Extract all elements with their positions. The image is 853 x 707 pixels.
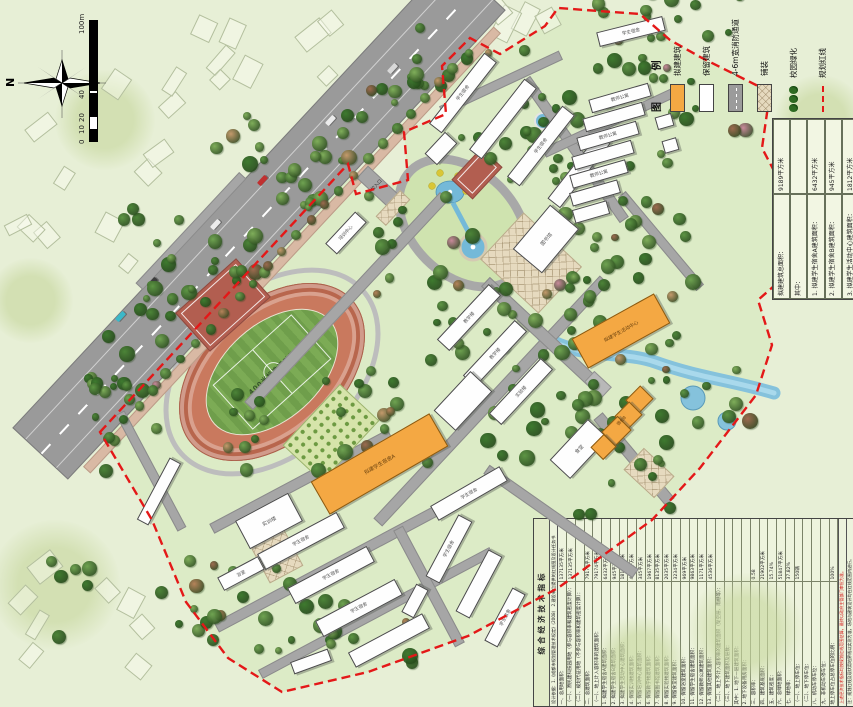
indicator-value xyxy=(812,519,820,581)
vegetation-blob xyxy=(688,573,803,688)
fountain-jet xyxy=(471,245,476,250)
tree xyxy=(392,123,402,133)
tree xyxy=(549,164,558,173)
tree xyxy=(497,450,508,461)
tree xyxy=(553,154,563,164)
tree xyxy=(573,509,585,521)
tree xyxy=(320,200,329,209)
indicator-row: （一）、原民建科技园用地（参与容积率和建筑密度计算）：137135平方米 xyxy=(567,519,576,706)
proposed-area-table: 拟建建筑总面积： 9189平方米 其中： 1. 拟建学生宿舍A建筑面积： 643… xyxy=(772,118,853,300)
tree xyxy=(124,394,135,405)
indicator-row: （二）、地下停车位： xyxy=(803,519,812,706)
tree xyxy=(310,151,321,162)
area-row-value: 945平方米 xyxy=(825,119,842,194)
tree xyxy=(648,377,655,384)
scale-tick: 20 xyxy=(78,113,86,122)
tree xyxy=(322,377,330,385)
area-row-label: 拟建建筑总面积： xyxy=(773,194,790,299)
indicator-value: 4536平方米 xyxy=(707,519,715,581)
indicator-value xyxy=(725,519,733,581)
tree xyxy=(239,441,251,453)
scale-tick: 0 xyxy=(78,140,86,144)
building-label: 实验楼 xyxy=(514,384,528,398)
proposed-building-swatch xyxy=(670,84,685,112)
tree xyxy=(615,354,626,365)
indicator-label: 八、机动车停车位： xyxy=(812,581,820,706)
tree xyxy=(598,279,610,291)
indicator-label: （一）、原民建科技园用地（参与容积率和建筑密度计算）： xyxy=(567,581,575,706)
tree xyxy=(564,308,577,321)
area-row-value xyxy=(790,119,807,194)
tree xyxy=(200,297,211,308)
tree xyxy=(288,636,295,643)
indicator-value: 100% xyxy=(830,519,838,581)
indicator-value: 15.74% xyxy=(768,519,776,581)
tree xyxy=(104,432,115,443)
indicator-row: 10. 保留浴室建筑面积：969平方米 xyxy=(681,519,690,706)
tree xyxy=(633,272,644,283)
indicator-value: 150辆 xyxy=(795,519,803,581)
legend-title: 图 例 xyxy=(648,2,663,112)
tree xyxy=(728,124,741,137)
building-label: 教师公寓 xyxy=(610,93,629,104)
tree xyxy=(189,579,204,594)
tree xyxy=(680,231,691,242)
tree xyxy=(307,215,316,224)
tree xyxy=(512,365,520,373)
tree xyxy=(437,301,447,311)
tree xyxy=(742,413,758,429)
retained-building-swatch xyxy=(699,84,714,112)
tree xyxy=(378,138,388,148)
indicator-value: 969平方米 xyxy=(681,519,689,581)
building-label: 教师公寓 xyxy=(598,131,617,142)
indicator-value xyxy=(803,519,811,581)
legend-item-firelane: 4-6m宽消防通道 xyxy=(721,2,750,112)
tree xyxy=(642,235,656,249)
tree xyxy=(336,407,346,417)
greening-swatch xyxy=(787,86,800,112)
tree xyxy=(732,366,740,374)
building-label: 学生宿舍 xyxy=(291,534,310,548)
tree xyxy=(143,295,150,302)
tree xyxy=(375,239,391,255)
tree xyxy=(208,234,222,248)
building-label: 学生宿舍 xyxy=(621,26,640,36)
indicator-row: 一、总用地面积：137135平方米 xyxy=(558,519,567,706)
tree xyxy=(235,292,244,301)
design-basis: 设计依据：1.《成都市规划管理技术规定》(2008) 2.建设单位提供的红线图及… xyxy=(550,519,558,706)
indicator-value xyxy=(742,519,750,581)
indicator-label: 九、非机动车停车位： xyxy=(821,581,829,706)
tree xyxy=(398,206,407,215)
tree xyxy=(151,423,161,433)
tree xyxy=(641,196,653,208)
tree xyxy=(174,215,183,224)
legend-item-proposed: 拟建建筑 xyxy=(663,2,692,112)
area-row-label: 2. 拟建学生宿舍B建筑面积： xyxy=(825,194,842,299)
tree xyxy=(243,112,251,120)
indicator-value: 1171平方米 xyxy=(698,519,706,581)
tree xyxy=(584,290,596,302)
building-label: 学生宿舍 xyxy=(460,486,479,500)
tree xyxy=(412,54,422,64)
tree xyxy=(135,401,145,411)
legend-item-paving: 铺装 xyxy=(750,2,779,112)
tree xyxy=(541,418,548,425)
tree xyxy=(385,273,395,283)
tree xyxy=(601,259,615,273)
building-label: 教学楼 xyxy=(488,346,502,360)
tree xyxy=(519,450,534,465)
building-label: 学生宿舍 xyxy=(349,601,368,615)
tree xyxy=(528,313,543,328)
scale-tick: 10 xyxy=(78,125,86,134)
tree xyxy=(655,409,669,423)
building-label: 浴室 xyxy=(236,568,247,578)
tree xyxy=(556,391,565,400)
tree xyxy=(349,171,358,180)
indicator-value: 0.58 xyxy=(751,519,759,581)
tree xyxy=(572,399,584,411)
tree xyxy=(312,136,326,150)
tree xyxy=(118,213,131,226)
tree xyxy=(176,355,184,363)
tree xyxy=(165,311,175,321)
tree xyxy=(585,508,597,520)
tree xyxy=(249,280,257,288)
indicator-label: （二）、地下停车位： xyxy=(803,581,811,706)
indicator-row: 地上停车位占总停车位的比例：100% xyxy=(830,519,839,706)
tree xyxy=(226,129,240,143)
tree xyxy=(167,293,178,304)
tree xyxy=(523,127,531,135)
tree xyxy=(153,239,161,247)
indicator-value xyxy=(733,519,741,581)
tree xyxy=(583,276,591,284)
tree xyxy=(607,53,622,68)
building-label: 拟建学生宿舍A xyxy=(362,452,396,475)
indicator-value: 8135平方米 xyxy=(655,519,663,581)
tree xyxy=(590,243,599,252)
tree xyxy=(608,479,615,486)
tree xyxy=(645,343,658,356)
legend-item-redline: 规划红线 xyxy=(808,2,837,112)
tree xyxy=(653,455,663,465)
tree xyxy=(373,290,381,298)
tree xyxy=(554,345,569,360)
tree xyxy=(337,127,349,139)
indicator-label: （二）、规划代征用地（不参与容积率和建筑密度计算）： xyxy=(576,581,584,706)
scale-bar-blocks xyxy=(89,20,98,142)
tree xyxy=(420,93,430,103)
legend-item-greening: 校园绿化 xyxy=(779,2,808,112)
tree xyxy=(663,376,670,383)
tree xyxy=(565,283,575,293)
tree xyxy=(207,634,219,646)
tree xyxy=(277,247,286,256)
scale-tick: 40 xyxy=(78,90,86,99)
tree xyxy=(255,142,264,151)
tree xyxy=(341,109,354,122)
tree xyxy=(363,153,374,164)
tree xyxy=(622,62,636,76)
tree xyxy=(639,253,651,265)
tree xyxy=(692,416,704,428)
tree xyxy=(685,274,701,290)
indicator-value: 21902平方米 xyxy=(760,519,768,581)
area-row-value: 9189平方米 xyxy=(773,119,790,194)
indicator-value: 345平方米 xyxy=(637,519,645,581)
area-row-value: 6432平方米 xyxy=(807,119,824,194)
scale-labels: 0 10 20 40 100m xyxy=(78,15,89,142)
campus-master-plan: 400米标准运动场 N 0 10 20 40 100m xyxy=(0,0,853,707)
area-row-value: 1812平方米 xyxy=(842,119,853,194)
indicator-table-title: 综合经济技术指标 xyxy=(534,519,550,706)
tree xyxy=(530,402,545,417)
tree xyxy=(155,334,169,348)
indicator-value: 37.82% xyxy=(786,519,794,581)
tree xyxy=(236,265,247,276)
tree xyxy=(218,308,229,319)
tree xyxy=(244,410,255,421)
scale-tick: 100m xyxy=(78,14,86,34)
building-label: 学生宿舍 xyxy=(321,568,340,582)
tree xyxy=(722,410,736,424)
tree xyxy=(184,555,196,567)
tree xyxy=(208,265,218,275)
scale-bar: 0 10 20 40 100m xyxy=(78,15,110,142)
tree xyxy=(122,381,132,391)
tree xyxy=(402,648,418,664)
tree xyxy=(146,308,158,320)
building-label: 拟建学生活动中心 xyxy=(603,319,640,344)
tree xyxy=(570,273,580,283)
tree xyxy=(611,234,618,241)
north-label: N xyxy=(4,78,17,87)
tree xyxy=(119,346,135,362)
tree xyxy=(458,134,465,141)
indicator-value xyxy=(821,519,829,581)
tree xyxy=(54,570,68,584)
tree xyxy=(373,227,384,238)
tree xyxy=(356,111,369,124)
indicator-label: 一、总用地面积： xyxy=(558,581,566,706)
indicator-value: 79174平方米 xyxy=(585,519,593,581)
legend-item-retained: 保留建筑 xyxy=(692,2,721,112)
legend: 图 例 拟建建筑 保留建筑 4-6m宽消防通道 铺装 校园绿化 规划红 xyxy=(648,2,853,112)
building-label: 食堂 xyxy=(573,443,585,455)
tree xyxy=(447,63,458,74)
tree xyxy=(662,366,669,373)
tree xyxy=(82,561,97,576)
tree xyxy=(291,230,301,240)
tree xyxy=(334,186,344,196)
tree xyxy=(433,265,448,280)
tree xyxy=(567,326,576,335)
indicator-row: 八、机动车停车位： xyxy=(812,519,821,706)
tree xyxy=(702,382,711,391)
indicator-label: 二、总建筑面积： xyxy=(585,581,593,706)
building-label: 学生宿舍 xyxy=(498,607,512,626)
area-row-label: 3. 拟建学生活动中心建筑面积： xyxy=(842,194,853,299)
tree xyxy=(497,302,511,316)
indicator-note: 注：规划红线及现状用地界线以实测为准，场地与建筑设计均在红线范围内进行。 xyxy=(846,519,853,706)
tree xyxy=(240,463,254,477)
tree xyxy=(447,236,460,249)
tree xyxy=(276,192,289,205)
indicator-note-red: 上述经济技术指标均按规划红线范围估算，最终以政府主管部门审批为准。 xyxy=(838,519,846,706)
tree xyxy=(275,647,282,654)
tree xyxy=(440,191,452,203)
tree xyxy=(147,281,163,297)
tree xyxy=(92,413,99,420)
building-label: 教学楼 xyxy=(462,310,476,324)
indicator-label: 地上停车位占总停车位的比例： xyxy=(830,581,838,706)
tree xyxy=(562,90,577,105)
indicator-value: 3234平方米 xyxy=(672,519,680,581)
red-line-swatch xyxy=(822,86,824,112)
indicator-row: 九、非机动车停车位： xyxy=(821,519,830,706)
tree xyxy=(191,339,200,348)
indicator-value xyxy=(716,519,724,581)
indicator-value: 9863平方米 xyxy=(690,519,698,581)
tree xyxy=(229,408,237,416)
indicator-value: 2035平方米 xyxy=(663,519,671,581)
fire-lane-swatch xyxy=(728,84,743,112)
area-row-label: 其中： xyxy=(790,194,807,299)
tree xyxy=(453,280,464,291)
paving-swatch xyxy=(757,84,772,112)
tree xyxy=(499,282,513,296)
tree xyxy=(659,435,674,450)
tree xyxy=(625,218,637,230)
tree xyxy=(519,45,530,56)
indicator-value: 51847平方米 xyxy=(777,519,785,581)
tree xyxy=(132,213,144,225)
tree xyxy=(665,339,674,348)
tree xyxy=(593,63,603,73)
indicator-row: （二）、规划代征用地（不参与容积率和建筑密度计算）： xyxy=(576,519,585,706)
building-label: 教师公寓 xyxy=(589,169,608,180)
building-label: 实训楼 xyxy=(261,514,278,527)
area-row-label: 1. 拟建学生宿舍A建筑面积： xyxy=(807,194,824,299)
building-label: 学生宿舍 xyxy=(442,539,456,558)
vegetation-blob xyxy=(595,615,685,705)
tree xyxy=(634,458,647,471)
tree xyxy=(380,424,389,433)
tree xyxy=(155,586,168,599)
building-label: 图书馆 xyxy=(538,231,553,247)
tree xyxy=(188,285,196,293)
tree xyxy=(386,407,395,416)
indicator-value: 1967平方米 xyxy=(646,519,654,581)
tree xyxy=(102,330,114,342)
